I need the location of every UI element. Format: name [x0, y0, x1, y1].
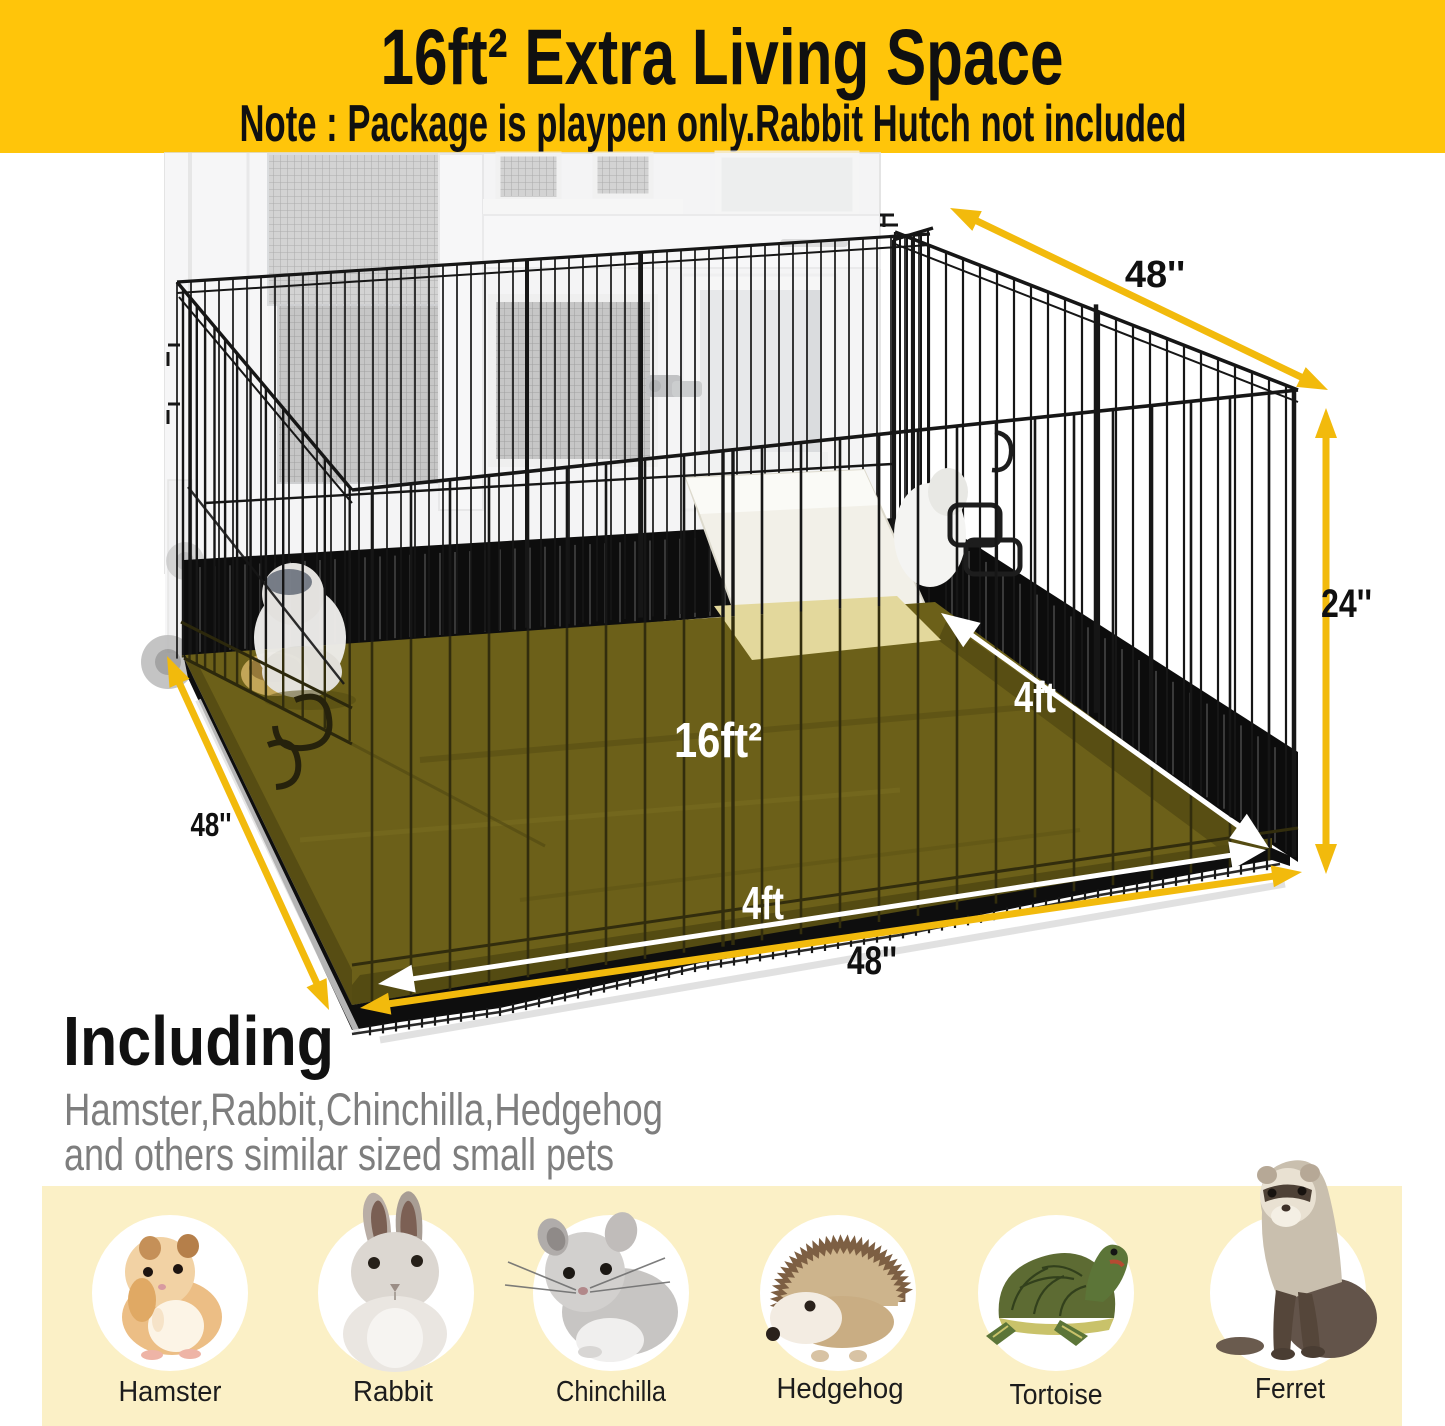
- svg-text:and others similar sized small: and others similar sized small pets: [64, 1129, 614, 1180]
- svg-text:24'': 24'': [1321, 582, 1372, 626]
- svg-text:4ft: 4ft: [742, 877, 784, 929]
- svg-text:Hamster: Hamster: [119, 1376, 222, 1408]
- svg-text:Hamster,Rabbit,Chinchilla,Hedg: Hamster,Rabbit,Chinchilla,Hedgehog: [64, 1084, 663, 1135]
- svg-text:Ferret: Ferret: [1255, 1373, 1325, 1405]
- svg-text:Tortoise: Tortoise: [1010, 1379, 1103, 1411]
- svg-text:48'': 48'': [1125, 254, 1185, 296]
- svg-text:Chinchilla: Chinchilla: [556, 1376, 667, 1408]
- svg-text:Including: Including: [63, 1002, 334, 1080]
- svg-text:Hedgehog: Hedgehog: [777, 1373, 904, 1405]
- svg-text:4ft: 4ft: [1014, 673, 1056, 722]
- svg-text:16ft² Extra Living Space: 16ft² Extra Living Space: [381, 12, 1064, 101]
- svg-text:48'': 48'': [847, 939, 897, 983]
- svg-text:Note : Package is playpen only: Note : Package is playpen only.Rabbit Hu…: [240, 95, 1187, 153]
- svg-text:48'': 48'': [191, 806, 232, 843]
- svg-text:Rabbit: Rabbit: [353, 1376, 433, 1408]
- svg-text:16ft²: 16ft²: [674, 714, 762, 768]
